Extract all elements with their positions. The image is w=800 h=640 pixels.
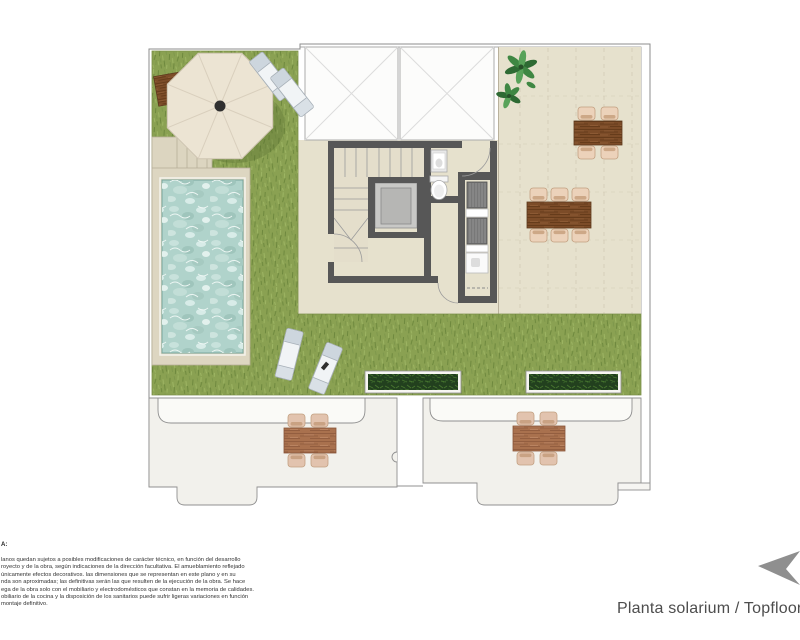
dining-chair — [311, 454, 328, 467]
dining-chair — [551, 188, 568, 201]
dining-chair — [572, 188, 589, 201]
disclaimer-line: royecto y de la obra, según indicaciones… — [1, 564, 251, 571]
disclaimer-lines: lanos quedan sujetos a posibles modifica… — [1, 557, 251, 609]
disclaimer-line: obiliario de la cocina y la disposición … — [1, 594, 251, 601]
dining-chair — [288, 454, 305, 467]
dining-table — [527, 202, 591, 228]
washbasin-icon — [431, 150, 447, 172]
dining-chair — [530, 188, 547, 201]
dining-chair — [551, 229, 568, 242]
disclaimer-line: nda son aproximadas; las definitivas ser… — [1, 579, 251, 586]
dining-chair — [578, 107, 595, 120]
disclaimer-heading: A: — [1, 542, 251, 548]
toilet-icon — [430, 176, 448, 200]
dining-chair — [311, 414, 328, 427]
arrow-logo-icon — [752, 545, 800, 590]
disclaimer-line: lanos quedan sujetos a posibles modifica… — [1, 557, 251, 564]
corner-step — [618, 483, 650, 490]
lower-terraces — [149, 398, 650, 505]
dining-chair — [540, 412, 557, 425]
skylights — [305, 47, 494, 140]
dining-chair — [601, 107, 618, 120]
plan-title: Planta solarium / Topfloor — [617, 600, 800, 618]
dining-chair — [601, 146, 618, 159]
dining-chair — [517, 452, 534, 465]
dining-table — [513, 426, 565, 451]
planter-box — [365, 371, 461, 393]
awning-outline-left — [158, 398, 365, 423]
swimming-pool — [162, 180, 243, 353]
elevator — [375, 183, 417, 234]
page: A: lanos quedan sujetos a posibles modif… — [0, 0, 800, 640]
dining-chair — [530, 229, 547, 242]
disclaimer-line: ega de la obra solo con el mobiliario y … — [1, 587, 251, 594]
dining-chair — [578, 146, 595, 159]
right-terrace-floor — [498, 47, 641, 314]
utility-units — [466, 182, 488, 273]
disclaimer-line: montaje definitivo. — [1, 601, 251, 608]
pool-area — [152, 137, 250, 365]
dining-set-6 — [527, 188, 591, 242]
skylight-right — [400, 47, 494, 140]
dining-chair — [540, 452, 557, 465]
dining-chair — [517, 412, 534, 425]
disclaimer-note: A: lanos quedan sujetos a posibles modif… — [1, 542, 251, 609]
dining-table — [284, 428, 336, 453]
dining-chair — [572, 229, 589, 242]
planter-box — [526, 371, 621, 393]
dining-chair — [288, 414, 305, 427]
dining-table — [574, 121, 622, 145]
disclaimer-line: únicamente efectos decorativos. las dime… — [1, 572, 251, 579]
skylight-left — [305, 47, 398, 140]
